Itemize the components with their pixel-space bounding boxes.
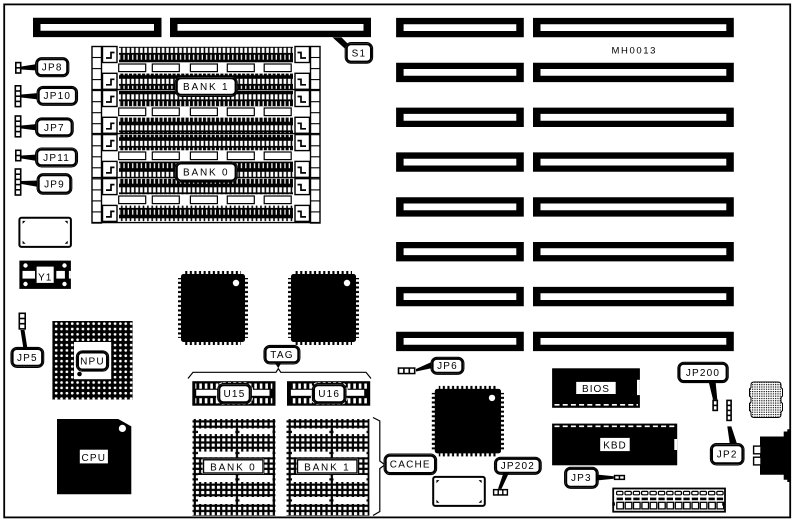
svg-text:CPU: CPU — [81, 453, 106, 464]
svg-text:JP202: JP202 — [501, 461, 535, 472]
svg-text:JP11: JP11 — [43, 153, 70, 164]
svg-text:JP3: JP3 — [571, 473, 592, 484]
svg-text:U15: U15 — [224, 389, 246, 400]
svg-text:CACHE: CACHE — [390, 460, 431, 471]
svg-text:JP8: JP8 — [42, 63, 63, 74]
svg-text:MH0013: MH0013 — [612, 46, 658, 57]
svg-text:BANK 1: BANK 1 — [183, 82, 229, 93]
svg-text:JP9: JP9 — [44, 179, 65, 190]
svg-text:JP2: JP2 — [717, 450, 738, 461]
svg-text:JP6: JP6 — [437, 361, 458, 372]
svg-text:Y1: Y1 — [38, 273, 52, 284]
svg-text:BIOS: BIOS — [582, 384, 610, 395]
svg-text:BANK 0: BANK 0 — [210, 463, 256, 474]
svg-text:JP5: JP5 — [17, 353, 38, 364]
svg-text:JP200: JP200 — [686, 368, 720, 379]
svg-text:U16: U16 — [318, 389, 340, 400]
svg-text:BANK 1: BANK 1 — [304, 463, 350, 474]
svg-text:TAG: TAG — [270, 350, 293, 361]
svg-text:S1: S1 — [352, 48, 367, 59]
svg-text:JP7: JP7 — [44, 123, 65, 134]
svg-text:JP10: JP10 — [44, 91, 72, 102]
svg-text:KBD: KBD — [603, 441, 627, 452]
svg-text:BANK 0: BANK 0 — [183, 167, 229, 178]
svg-text:NPU: NPU — [80, 356, 105, 367]
